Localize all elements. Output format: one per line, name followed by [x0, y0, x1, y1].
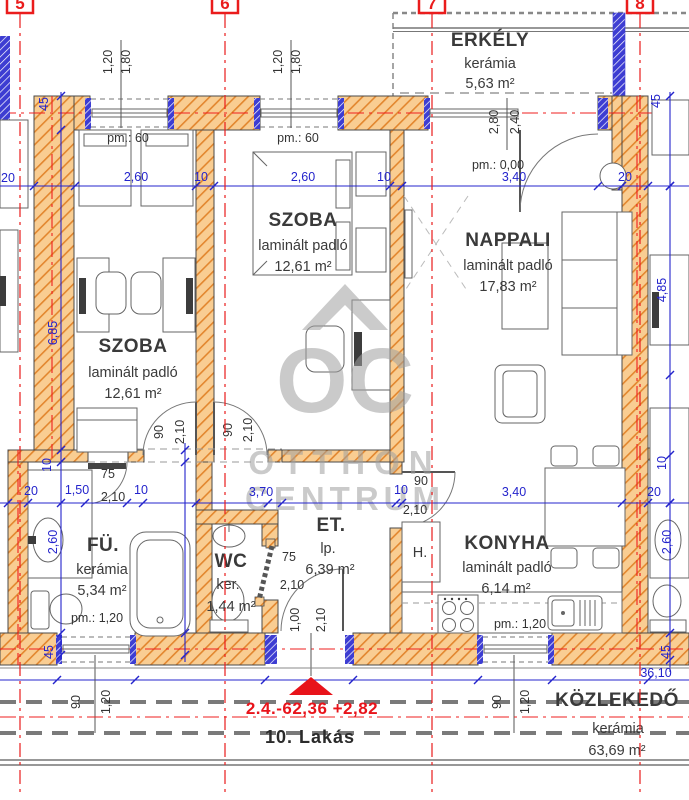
window-bathroom	[56, 635, 136, 664]
svg-text:ker.: ker.	[216, 577, 239, 593]
dimension-label: 2,10	[101, 490, 125, 504]
svg-text:WC: WC	[215, 551, 248, 572]
dimension-label: 1,20	[99, 690, 113, 714]
svg-text:5,34 m²: 5,34 m²	[77, 583, 126, 599]
room-label-kozlekedo: KÖZLEKEDŐ kerámia 63,69 m²	[555, 689, 679, 759]
window-bedroom1	[85, 98, 174, 129]
svg-text:SZOBA: SZOBA	[269, 210, 338, 231]
room-label-erkely: ERKÉLY kerámia 5,63 m²	[451, 29, 529, 92]
dimension-label: 10	[655, 456, 669, 470]
dimension-label: 90	[490, 695, 504, 709]
svg-text:63,69 m²: 63,69 m²	[588, 743, 645, 759]
svg-text:12,61 m²: 12,61 m²	[104, 386, 161, 402]
svg-text:6,39 m²: 6,39 m²	[305, 562, 354, 578]
chair-2	[131, 272, 161, 314]
dimension-label: 2,10	[403, 503, 427, 517]
room-label-konyha: KONYHA laminált padló 6,14 m²	[462, 533, 551, 597]
dimension-label: 2,40	[508, 110, 522, 134]
dimension-label: 3,40	[502, 485, 526, 499]
svg-text:laminált padló: laminált padló	[462, 560, 551, 576]
desk-2	[163, 258, 195, 332]
dimension-label: 20	[647, 485, 661, 499]
dimension-label: 2,60	[46, 530, 60, 554]
svg-text:6,14 m²: 6,14 m²	[481, 581, 530, 597]
svg-text:ERKÉLY: ERKÉLY	[451, 29, 529, 51]
grid-marker-number: 8	[635, 0, 644, 13]
nightstand-2	[356, 228, 386, 272]
svg-text:5,63 m²: 5,63 m²	[465, 76, 514, 92]
dimension-label: pm.: 60	[107, 131, 149, 145]
svg-text:17,83 m²: 17,83 m²	[479, 279, 536, 295]
svg-text:kerámia: kerámia	[464, 56, 517, 72]
svg-text:kerámia: kerámia	[592, 721, 645, 737]
dimension-label: 3,40	[502, 170, 526, 184]
dimension-label: 2,10	[173, 420, 187, 444]
dimension-label: 75	[101, 467, 115, 481]
dimension-label: pm.: 60	[277, 131, 319, 145]
watermark-line1: OTTHON	[248, 444, 441, 481]
dimension-label: 4,85	[655, 278, 669, 302]
dimension-label: 2,60	[124, 170, 148, 184]
bathtub	[130, 532, 190, 636]
dimension-label: 10	[134, 483, 148, 497]
dimension-label: 2,10	[280, 578, 304, 592]
dimension-label: 2,60	[291, 170, 315, 184]
dimension-label: 45	[659, 645, 673, 659]
dimension-label: 10	[377, 170, 391, 184]
dimension-label: 6,85	[46, 321, 60, 345]
svg-text:ET.: ET.	[317, 515, 346, 536]
dimension-label: 1,20	[101, 50, 115, 74]
apartment-label: 10. Lakás	[265, 727, 355, 747]
dimension-label: 45	[42, 645, 56, 659]
left-exterior-wall	[34, 96, 74, 458]
dimension-label: 45	[37, 97, 51, 111]
svg-text:kerámia: kerámia	[76, 562, 129, 578]
dresser-1	[77, 408, 137, 452]
dimension-label: 90	[152, 425, 166, 439]
neighbor-furniture-left	[0, 120, 28, 352]
balcony	[393, 13, 689, 96]
window-kitchen	[477, 635, 554, 664]
wall-opening-marker	[404, 196, 468, 292]
dimension-label: pm.: 1,20	[71, 611, 123, 625]
svg-text:KONYHA: KONYHA	[464, 533, 549, 554]
svg-text:laminált padló: laminált padló	[88, 365, 177, 381]
grid-marker-number: 5	[15, 0, 24, 13]
svg-text:KÖZLEKEDŐ: KÖZLEKEDŐ	[555, 689, 679, 711]
floor-plan-drawing: OC OTTHON CENTRUM ERKÉLY kerámia	[0, 0, 689, 800]
grid-marker-number: 6	[220, 0, 229, 13]
dimension-label: 1,50	[65, 483, 89, 497]
fridge-label: H.	[413, 545, 428, 561]
watermark-logo: OC	[276, 330, 414, 432]
dimension-label: 1,20	[518, 690, 532, 714]
room-label-szoba1: SZOBA laminált padló 12,61 m²	[88, 336, 177, 402]
wc-basin	[213, 525, 245, 547]
balcony-glass-jamb	[613, 13, 625, 96]
room-label-eloter: ET. lp. 6,39 m²	[305, 515, 354, 578]
dimension-label: 20	[24, 484, 38, 498]
dimension-label: 2,80	[487, 110, 501, 134]
dimension-label: 90	[414, 474, 428, 488]
room-label-wc: WC ker. 1,44 m²	[206, 551, 255, 615]
dimension-label: 1,20	[271, 50, 285, 74]
dimension-label: 1,00	[288, 608, 302, 632]
dimension-label: 10	[194, 170, 208, 184]
dimension-label: 2,10	[314, 608, 328, 632]
dimension-label: 2,60	[660, 530, 674, 554]
dimension-label: 3,70	[249, 485, 273, 499]
dimension-label: 1,80	[119, 50, 133, 74]
dimension-label: 36,10	[640, 666, 671, 680]
radiator	[405, 210, 412, 278]
dining-table	[545, 468, 625, 546]
grid-marker-number: 7	[427, 0, 436, 13]
sofa	[562, 212, 632, 355]
svg-text:FÜ.: FÜ.	[87, 535, 119, 556]
armchair	[495, 365, 545, 423]
window-bedroom2	[254, 98, 344, 129]
kitchen-sink	[548, 596, 602, 630]
floor-plan: OC OTTHON CENTRUM ERKÉLY kerámia	[0, 0, 689, 800]
svg-text:12,61 m²: 12,61 m²	[274, 259, 331, 275]
dimension-label: 20	[1, 171, 15, 185]
dimension-label: 90	[221, 423, 235, 437]
dimension-label: 2,10	[241, 418, 255, 442]
svg-text:1,44 m²: 1,44 m²	[206, 599, 255, 615]
dimension-label: 1,80	[289, 50, 303, 74]
window-jamb-neighbor-left	[0, 36, 10, 120]
svg-text:laminált padló: laminált padló	[463, 258, 552, 274]
svg-text:SZOBA: SZOBA	[99, 336, 168, 357]
svg-text:laminált padló: laminált padló	[258, 238, 347, 254]
stove	[438, 595, 478, 633]
door-wc	[255, 539, 275, 606]
svg-text:NAPPALI: NAPPALI	[465, 230, 550, 251]
dimension-label: 10	[40, 458, 54, 472]
dimension-label: 45	[649, 94, 663, 108]
svg-text:lp.: lp.	[320, 541, 335, 557]
dimension-label: pm.: 1,20	[494, 617, 546, 631]
dimension-label: 20	[618, 170, 632, 184]
dimension-label: 10	[394, 483, 408, 497]
chair-1	[96, 272, 126, 314]
dimension-label: 75	[282, 550, 296, 564]
dimension-label: 90	[69, 695, 83, 709]
elevation-label: 2.4.-62,36 +2,82	[246, 699, 378, 718]
